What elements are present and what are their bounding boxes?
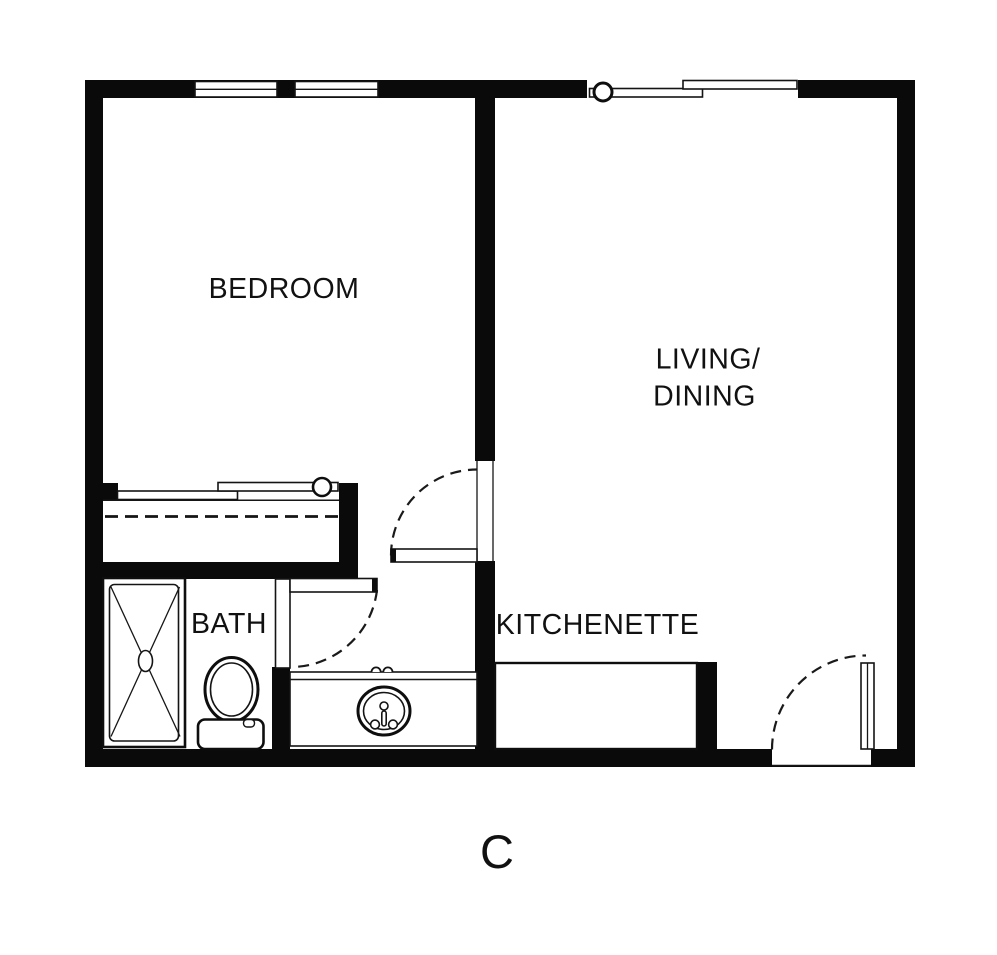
kitchenette-counter-group	[495, 663, 697, 749]
unit-plan-letter: C	[480, 825, 514, 878]
toilet-bowl-outer	[205, 658, 258, 722]
living-label-line1: LIVING/	[656, 344, 761, 376]
wall-divider-lower	[475, 561, 495, 751]
closet-panel-lower	[118, 491, 238, 500]
hall-door-leaf	[391, 549, 477, 562]
kitchenette-counter	[495, 663, 697, 749]
wall-right	[897, 80, 915, 767]
entry-door-swing-arc	[772, 656, 866, 750]
toilet	[198, 658, 264, 750]
bath-door-leaf	[290, 579, 377, 593]
entry-threshold	[772, 749, 871, 766]
bath-label: BATH	[191, 608, 267, 640]
sink-handle-right	[389, 720, 398, 729]
vanity	[290, 667, 477, 746]
shower-drain	[139, 651, 153, 672]
sliding-door-handle	[594, 83, 612, 101]
sliding-patio-door	[587, 79, 798, 101]
wall-left	[85, 80, 103, 767]
sink-faucet-top	[380, 702, 388, 710]
entry-door	[772, 656, 874, 766]
bath-doorway-opening	[276, 579, 291, 668]
shower	[103, 578, 185, 747]
sink-handle-left	[371, 720, 380, 729]
bath-door	[276, 579, 378, 669]
floor-plan: BEDROOM LIVING/ DINING KITCHENETTE BATH …	[0, 0, 997, 955]
wall-kitchen-stub	[697, 662, 717, 767]
hall-door-leaf-cap	[391, 549, 396, 562]
hall-door	[391, 461, 495, 562]
wall-divider-upper	[475, 96, 495, 461]
bedroom-closet	[103, 478, 339, 517]
hall-door-swing-arc	[391, 470, 477, 556]
wall-closet-left-stub	[100, 483, 118, 501]
hall-doorway-opening	[475, 461, 495, 561]
wall-bath-alcove	[272, 667, 290, 751]
living-label-line2: DINING	[653, 381, 756, 413]
bedroom-label: BEDROOM	[209, 273, 360, 305]
bath-door-leaf-cap	[372, 579, 377, 593]
floor-plan-page: BEDROOM LIVING/ DINING KITCHENETTE BATH …	[0, 0, 997, 955]
closet-door-handle	[313, 478, 331, 496]
sliding-door-panel-upper	[683, 81, 797, 90]
sink-faucet-stem	[382, 711, 386, 726]
bath-door-swing-arc	[293, 590, 378, 667]
faucet-bump-left	[372, 667, 381, 672]
faucet-bump-right	[383, 667, 392, 672]
kitchenette-label: KITCHENETTE	[496, 609, 699, 641]
wall-bath-top	[85, 562, 358, 579]
toilet-tank-notch	[244, 720, 255, 728]
